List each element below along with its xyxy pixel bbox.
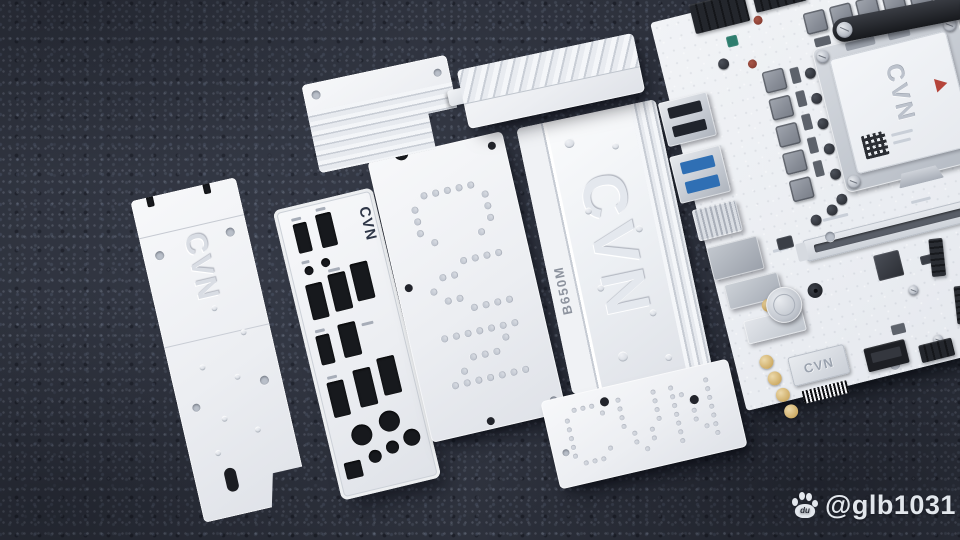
perforation-dot — [455, 184, 463, 192]
perforation-dot — [432, 189, 440, 197]
perforation-dot — [599, 410, 604, 415]
perforation-dot — [693, 416, 698, 421]
screw-hole — [487, 141, 497, 151]
perforation-dot — [460, 256, 468, 264]
standoff-red — [753, 15, 764, 26]
port-cutout-audio-jack — [385, 439, 401, 455]
port-label-mark — [361, 321, 373, 326]
port-cutout-usb — [349, 260, 375, 301]
port-label-mark — [315, 207, 325, 212]
port-cutout-optical — [344, 459, 364, 479]
perforation-dot — [570, 445, 575, 450]
screw-hole — [486, 416, 496, 426]
socket-screw — [815, 49, 831, 65]
front-panel-header — [918, 338, 955, 364]
port-label-mark — [291, 217, 301, 222]
perforation-dot — [707, 395, 712, 400]
perforation-dot — [674, 412, 679, 417]
rubber-pad — [223, 467, 240, 493]
perforation-dot — [463, 379, 471, 387]
pcie-latch — [795, 242, 809, 262]
audio-capacitor — [758, 353, 775, 370]
perforation-dot — [482, 300, 490, 308]
perforation-dot — [441, 335, 449, 343]
perforation-dot — [511, 318, 519, 326]
seam-line — [164, 323, 269, 348]
dimple — [234, 373, 241, 380]
perforation-dot — [494, 298, 502, 306]
perforation-dot — [487, 213, 495, 221]
perforation-dot — [649, 426, 654, 431]
bracket-screw — [835, 20, 854, 39]
perforation-dot — [589, 403, 594, 408]
photo-scene: CVN CVN — [0, 0, 960, 540]
perforation-dot — [476, 327, 484, 335]
screw-hole — [192, 403, 202, 413]
port-cutout-lan — [376, 355, 402, 396]
baidu-paw-icon: du — [792, 492, 818, 519]
perforation-dot — [670, 394, 675, 399]
perforation-dot — [676, 420, 681, 425]
port-cutout-usb — [305, 282, 330, 321]
port-label-mark — [327, 375, 337, 380]
dot-matrix-brand — [403, 178, 531, 396]
perforation-dot — [522, 365, 530, 373]
perforation-dot — [572, 453, 577, 458]
port-cutout-audio-jack — [402, 427, 422, 447]
perforation-dot — [713, 421, 718, 426]
port-cutout-usb — [292, 222, 313, 254]
perforation-dot — [444, 297, 452, 305]
perforation-dot — [471, 303, 479, 311]
port-cutout-round — [320, 257, 331, 268]
perforation-dot — [619, 415, 624, 420]
perforation-dot — [632, 430, 637, 435]
perforation-dot — [510, 368, 518, 376]
perforation-dot — [608, 445, 613, 450]
battery-ring — [771, 292, 798, 319]
perforation-dot — [715, 430, 720, 435]
perforation-dot — [652, 398, 657, 403]
perforation-dot — [475, 376, 483, 384]
usb-port-slot — [667, 100, 703, 119]
perforation-dot — [430, 288, 438, 296]
vrm-choke — [802, 9, 829, 36]
perforation-dot — [431, 238, 439, 246]
audio-capacitor — [766, 370, 783, 387]
ic-chip — [776, 235, 794, 251]
perforation-dot — [568, 436, 573, 441]
dimple — [215, 449, 222, 456]
perforation-dot — [680, 438, 685, 443]
perforation-dot — [444, 186, 452, 194]
backplate-brand-text: CVN — [177, 230, 226, 305]
perforation-dot — [583, 460, 588, 465]
port-cutout-usb — [326, 379, 351, 418]
cpu-socket: CVN — [811, 13, 960, 193]
vrm-choke — [788, 176, 815, 203]
dimple — [211, 305, 218, 312]
perforation-dot — [467, 181, 475, 189]
vrm-choke — [775, 122, 802, 149]
cover-text-mark — [891, 129, 913, 137]
qr-code — [861, 131, 890, 160]
perforation-dot — [506, 295, 514, 303]
screw-dimple — [563, 137, 575, 149]
mosfet — [807, 136, 820, 154]
perforation-dot — [414, 218, 422, 226]
usb3-front-header — [863, 339, 910, 372]
perforation-dot — [488, 324, 496, 332]
screw-hole — [562, 449, 570, 457]
perforation-dot — [668, 385, 673, 390]
silkscreen-mark — [911, 196, 931, 204]
port-cutout-round — [304, 265, 315, 276]
perforation-dot — [566, 427, 571, 432]
vrm-choke — [782, 149, 809, 176]
perforation-dot — [634, 439, 639, 444]
screw-hole — [311, 90, 322, 101]
usb-port-slot — [672, 119, 708, 138]
lan-port-shield — [706, 236, 765, 282]
piezo-buzzer — [806, 281, 824, 299]
screw-hole — [404, 283, 414, 293]
dimple — [649, 309, 657, 317]
vrm-choke — [768, 94, 795, 121]
perforation-dot — [678, 392, 683, 397]
socket-cover-brand-text: CVN — [879, 61, 921, 126]
io-shield-brand-text: CVN — [355, 205, 380, 243]
jumper-block — [890, 322, 906, 335]
perforation-dot — [484, 202, 492, 210]
dimple — [199, 364, 206, 371]
perforation-dot — [650, 389, 655, 394]
perforation-dot — [654, 407, 659, 412]
socket-latch-bottom — [896, 164, 944, 189]
mosfet — [812, 160, 825, 178]
capacitor — [835, 193, 848, 206]
perforation-dot — [617, 406, 622, 411]
perforation-dot — [703, 377, 708, 382]
perforation-dot — [451, 271, 459, 279]
perforation-dot — [493, 347, 501, 355]
perforation-dot — [691, 407, 696, 412]
screw-dimple — [617, 351, 629, 363]
m2-connector — [954, 285, 960, 324]
port-label-mark — [301, 260, 309, 264]
dimple — [240, 329, 247, 336]
perforation-dot — [420, 192, 428, 200]
usb2-pin-header — [689, 0, 751, 34]
dimple — [665, 353, 673, 361]
perforation-dot — [645, 446, 650, 451]
perforation-dot — [411, 206, 419, 214]
dimple — [221, 415, 228, 422]
perforation-dot — [601, 456, 606, 461]
perforation-dot — [571, 407, 576, 412]
heatsink-model-text: B650M — [550, 265, 575, 316]
edge-heatsink-fins — [692, 200, 743, 242]
perforation-dot — [452, 381, 460, 389]
perforation-dot — [615, 397, 620, 402]
perforation-dot — [464, 329, 472, 337]
m2-connector — [928, 238, 946, 277]
perforation-dot — [651, 435, 656, 440]
screw-hole — [154, 250, 165, 261]
watermark-handle: @glb1031 — [825, 490, 956, 521]
warning-triangle-icon — [934, 76, 949, 92]
port-cutout-usb — [315, 212, 338, 249]
perforation-dot — [461, 367, 469, 375]
perforation-dot — [704, 423, 709, 428]
perforation-dot — [487, 373, 495, 381]
perforation-dot — [502, 333, 510, 341]
perforation-dot — [453, 332, 461, 340]
mosfet — [795, 90, 808, 108]
port-cutout-audio-jack — [377, 408, 402, 433]
watermark: du @glb1031 — [792, 490, 956, 521]
perforation-dot — [478, 228, 486, 236]
buzzer-hole — [813, 288, 818, 293]
perforation-dot — [672, 403, 677, 408]
capacitor — [717, 57, 730, 70]
perforation-dot — [481, 350, 489, 358]
perforation-dot — [678, 429, 683, 434]
perforation-dot — [580, 405, 585, 410]
port-label-mark — [315, 328, 325, 333]
perforation-dot — [592, 458, 597, 463]
port-cutout-hdmi — [337, 321, 362, 358]
ic-chip — [726, 34, 739, 47]
perforation-dot — [656, 416, 661, 421]
cover-text-mark — [893, 137, 911, 144]
perforation-dot — [711, 412, 716, 417]
capacitor — [809, 213, 822, 226]
screw-hole — [225, 227, 236, 238]
m2-standoff — [907, 284, 919, 296]
dimple — [254, 426, 261, 433]
vrm-choke — [761, 67, 788, 94]
perforation-dot — [621, 424, 626, 429]
port-cutout-audio-jack — [367, 449, 383, 465]
usb2-pin-header — [750, 0, 807, 13]
header-slot — [870, 346, 902, 363]
mosfet — [801, 113, 814, 131]
usb3-port-slot — [685, 174, 721, 194]
mosfet — [789, 67, 802, 85]
port-cutout-audio-jack — [349, 422, 374, 447]
port-cutout-displayport — [315, 333, 336, 365]
perforation-dot — [498, 371, 506, 379]
perforation-dot — [471, 254, 479, 262]
screw-hole — [259, 375, 270, 386]
chipset-ic — [873, 250, 905, 282]
perforation-dot — [456, 294, 464, 302]
audio-module-brand-text: CVN — [802, 354, 835, 376]
port-cutout-usb — [352, 367, 378, 408]
perforation-dot — [709, 403, 714, 408]
cpu-socket-cover: CVN — [829, 31, 960, 175]
perforation-dot — [417, 229, 425, 237]
socket-screw — [846, 174, 862, 190]
screw-hole — [433, 68, 442, 77]
standoff-red — [747, 58, 758, 69]
perforation-dot — [481, 190, 489, 198]
perforation-dot — [470, 353, 478, 361]
perforation-dot — [564, 418, 569, 423]
perforation-dot — [705, 386, 710, 391]
dimple — [611, 142, 619, 150]
perforation-dot — [495, 248, 503, 256]
usb3-port-slot — [680, 155, 716, 175]
port-cutout-usb — [327, 271, 353, 312]
perforation-dot — [439, 274, 447, 282]
perforation-dot — [499, 321, 507, 329]
baidu-logo-text: du — [800, 507, 810, 515]
perforation-dot — [483, 251, 491, 259]
